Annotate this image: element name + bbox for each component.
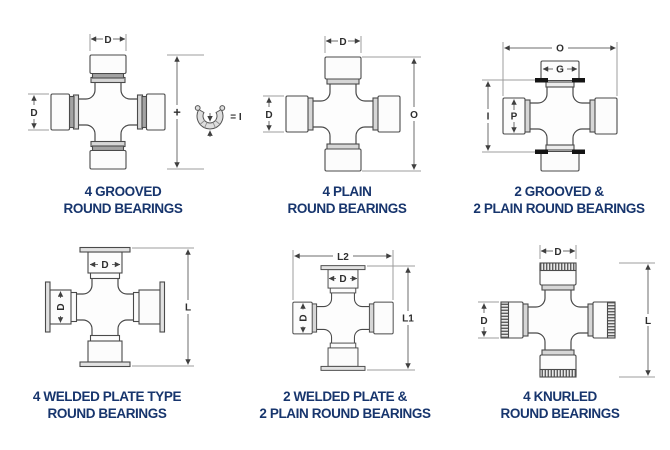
plain-cap-right: [373, 96, 400, 132]
dim-label-i: I: [487, 112, 490, 123]
dim-label-d-left: D: [56, 303, 67, 310]
plain-cap-right: [369, 302, 393, 334]
diagram-sheet: D D + = I 4 GROOVED ROUND BEARINGS: [0, 0, 670, 450]
caption-line: 4 GROOVED: [13, 184, 233, 201]
plain-cap-left: [286, 96, 313, 132]
knurled-cap-left: [501, 302, 528, 338]
cross-4-knurled: [501, 263, 615, 377]
knurled-cap-bottom: [540, 350, 576, 377]
caption-line: 2 WELDED PLATE &: [233, 389, 457, 406]
dim-label-d-top: D: [339, 274, 346, 285]
caption-line: ROUND BEARINGS: [13, 201, 233, 218]
caption-4-plain: 4 PLAIN ROUND BEARINGS: [247, 184, 447, 217]
figure-4-grooved: D D + = I: [5, 20, 285, 192]
caption-line: 2 PLAIN ROUND BEARINGS: [233, 406, 457, 423]
dim-label-d-top: D: [339, 37, 346, 48]
dim-label-l1: L1: [402, 314, 414, 325]
caption-line: 4 WELDED PLATE TYPE: [0, 389, 214, 406]
dim-label-g: G: [556, 65, 564, 76]
grooved-cap-bottom: [90, 142, 126, 170]
dim-label-l: L: [185, 303, 191, 314]
dim-label-o-right: O: [410, 110, 418, 121]
dim-label-d-top: D: [101, 260, 108, 271]
dim-label-l2: L2: [337, 252, 349, 263]
plate-cap-bottom: [321, 343, 365, 370]
figure-4-knurled: D D L: [458, 240, 665, 410]
figure-4-welded-plate: D D L: [5, 237, 220, 407]
dim-label-ring-equals-i: = I: [230, 112, 242, 123]
dim-top-d: D: [325, 36, 361, 53]
caption-2-grooved-2-plain: 2 GROOVED & 2 PLAIN ROUND BEARINGS: [448, 184, 670, 217]
dim-label-plus: +: [173, 105, 181, 120]
figure-4-plain: D D O: [258, 20, 453, 192]
caption-line: ROUND BEARINGS: [247, 201, 447, 218]
dim-left-d: D: [263, 96, 284, 132]
dim-label-l: L: [645, 316, 651, 327]
dim-label-d-left: D: [480, 316, 487, 327]
plain-cap-right: [590, 98, 617, 134]
caption-line: ROUND BEARINGS: [0, 406, 214, 423]
plate-cap-bottom: [80, 336, 130, 367]
figure-2-grooved-2-plain: O G I P: [458, 20, 665, 192]
caption-4-welded-plate: 4 WELDED PLATE TYPE ROUND BEARINGS: [0, 389, 214, 422]
dim-top-d: D: [90, 34, 126, 51]
dim-label-o-top: O: [556, 44, 564, 55]
caption-4-knurled: 4 KNURLED ROUND BEARINGS: [450, 389, 670, 422]
dim-label-p: P: [511, 112, 518, 123]
plate-cap-right: [134, 282, 165, 332]
dim-right-l: L: [619, 263, 655, 377]
plain-cap-top: [325, 57, 361, 84]
caption-line: ROUND BEARINGS: [450, 406, 670, 423]
dim-left-d: D: [478, 302, 499, 338]
plain-cap-bottom: [325, 144, 361, 171]
snap-ring-cap-bottom: [535, 145, 585, 171]
dim-label-d-top: D: [554, 247, 561, 258]
dim-top-d: D: [540, 245, 576, 259]
grooved-cap-right: [138, 94, 166, 130]
caption-4-grooved: 4 GROOVED ROUND BEARINGS: [13, 184, 233, 217]
dim-label-d-left: D: [30, 108, 37, 119]
cross-4-grooved: [51, 55, 165, 169]
snap-ring-symbol: [195, 106, 224, 137]
caption-line: 2 PLAIN ROUND BEARINGS: [448, 201, 670, 218]
knurled-cap-top: [540, 263, 576, 290]
caption-2-welded-2-plain: 2 WELDED PLATE & 2 PLAIN ROUND BEARINGS: [233, 389, 457, 422]
cross-2-grooved-2-plain: [503, 61, 617, 171]
caption-line: 4 PLAIN: [247, 184, 447, 201]
grooved-cap-left: [51, 94, 79, 130]
cross-4-plain: [286, 57, 400, 171]
grooved-cap-top: [90, 55, 126, 83]
caption-line: 2 GROOVED &: [448, 184, 670, 201]
figure-2-welded-2-plain: L2 D D L1: [238, 240, 453, 408]
dim-label-d-top: D: [104, 35, 111, 46]
dim-label-d-left: D: [265, 110, 272, 121]
dim-label-d-left: D: [299, 314, 310, 321]
knurled-cap-right: [588, 302, 615, 338]
dim-left-d: D: [28, 94, 49, 130]
caption-line: 4 KNURLED: [450, 389, 670, 406]
